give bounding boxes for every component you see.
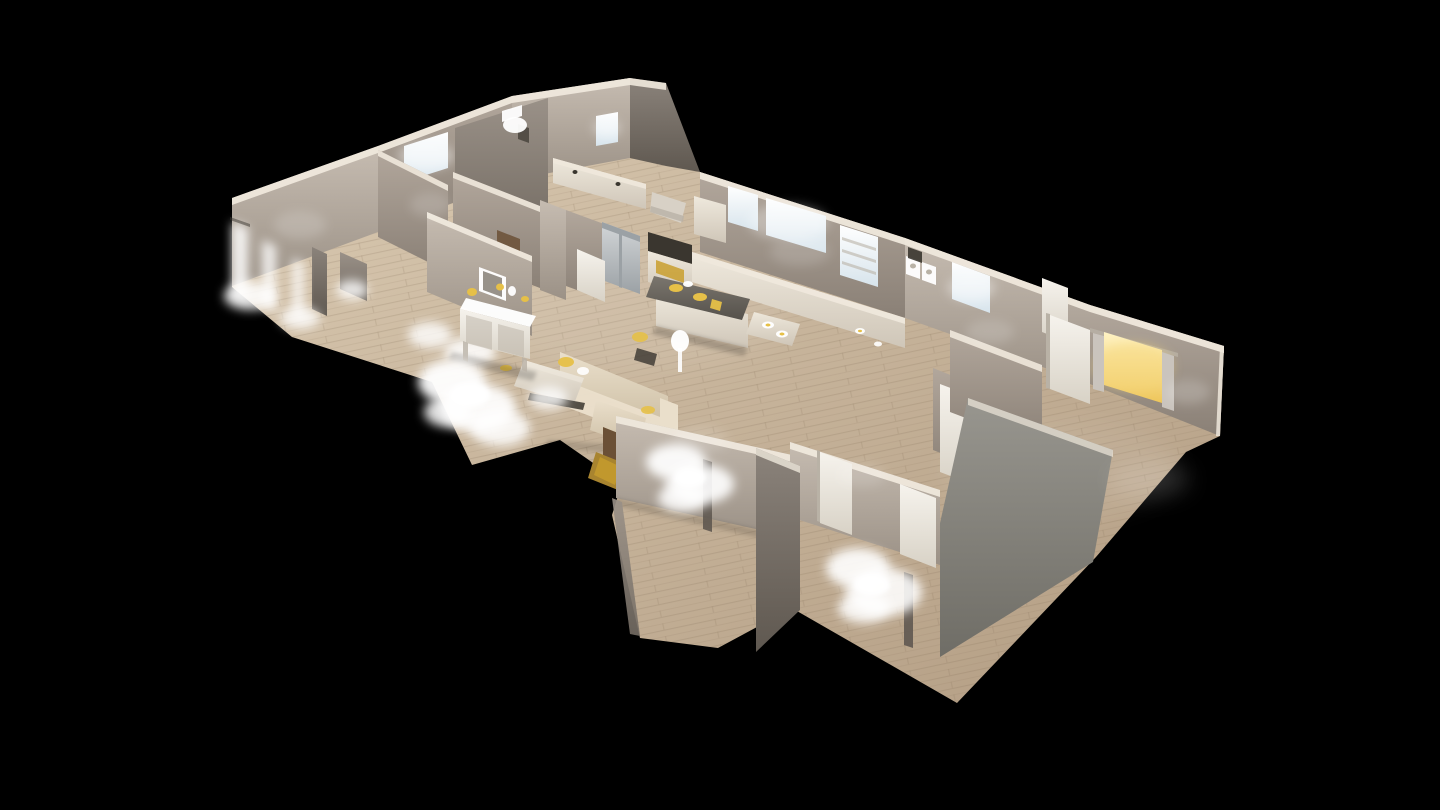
dining-dot-1 bbox=[766, 324, 771, 327]
dining-dot-2 bbox=[780, 333, 785, 336]
decor-yellow-3 bbox=[521, 296, 529, 302]
faucet-1 bbox=[573, 170, 578, 174]
washer-door bbox=[910, 264, 916, 269]
island-plate-1 bbox=[669, 284, 683, 292]
console-blob-core bbox=[450, 383, 490, 407]
hall-blob-1 bbox=[408, 322, 452, 348]
dollhouse-3d-viewer[interactable] bbox=[0, 0, 1440, 810]
door-right-frame bbox=[1046, 313, 1050, 389]
ceiling-glow-right1 bbox=[966, 320, 1014, 344]
decor-yellow-1 bbox=[467, 288, 477, 296]
floor-plate-2 bbox=[874, 342, 882, 347]
window-right-glow bbox=[947, 275, 995, 301]
ceiling-glow-right2 bbox=[1110, 462, 1190, 498]
ceiling-glow-bed2 bbox=[838, 463, 886, 487]
toilet-bowl bbox=[503, 117, 527, 133]
ceiling-glow-right-wall bbox=[1166, 380, 1210, 404]
decor-yellow-2 bbox=[496, 284, 504, 291]
island-plate-2 bbox=[693, 293, 707, 301]
dollhouse-model bbox=[224, 78, 1224, 703]
wall-pantry bbox=[540, 200, 566, 300]
door-bed2-a bbox=[820, 452, 852, 535]
bed1-blob-core bbox=[674, 468, 706, 488]
closet-frame-1 bbox=[312, 247, 327, 316]
sofa-throw-yellow bbox=[558, 357, 574, 367]
dollhouse-scene-canvas[interactable] bbox=[0, 0, 1440, 810]
dryer-door bbox=[926, 270, 932, 275]
closet-blob bbox=[336, 280, 368, 300]
door-bed2-b bbox=[900, 484, 936, 568]
ceiling-glow-master bbox=[274, 211, 326, 239]
master-blob-1 bbox=[224, 282, 276, 310]
wall-divider bbox=[756, 448, 800, 652]
bed1-blob-3 bbox=[658, 484, 706, 512]
floor-dot-1 bbox=[858, 330, 862, 332]
door-right bbox=[1050, 315, 1090, 404]
window-warm-glow bbox=[1093, 343, 1173, 391]
sofa-left-blob bbox=[528, 386, 568, 410]
ceiling-glow-hall bbox=[410, 193, 450, 217]
hall-pillow bbox=[632, 332, 648, 342]
bed2-blob-3 bbox=[838, 593, 890, 623]
door-bed2-frame bbox=[817, 450, 820, 522]
console-leg-1 bbox=[463, 341, 468, 362]
faucet-2 bbox=[616, 182, 621, 186]
window-small-glow bbox=[593, 119, 621, 137]
floor-lamp-shade bbox=[671, 330, 689, 352]
sofa-pillow-white bbox=[577, 367, 589, 375]
sofa-pillow-yellow bbox=[641, 406, 655, 414]
island-bowl bbox=[683, 281, 693, 287]
console-blob-3 bbox=[470, 410, 530, 446]
fridge-split bbox=[619, 229, 622, 288]
bed2-blob-core bbox=[854, 574, 890, 596]
console-leg-2 bbox=[522, 357, 527, 372]
curtain-right bbox=[1162, 352, 1174, 411]
decor-vase bbox=[508, 286, 516, 296]
curtain-left bbox=[1093, 333, 1104, 392]
ceiling-glow-bed1 bbox=[672, 426, 728, 454]
master-blob-2 bbox=[280, 307, 320, 329]
wall-peak-side bbox=[630, 78, 700, 172]
window-kitchen-glow bbox=[748, 204, 828, 240]
ceiling-glow-kitchen bbox=[770, 238, 830, 266]
